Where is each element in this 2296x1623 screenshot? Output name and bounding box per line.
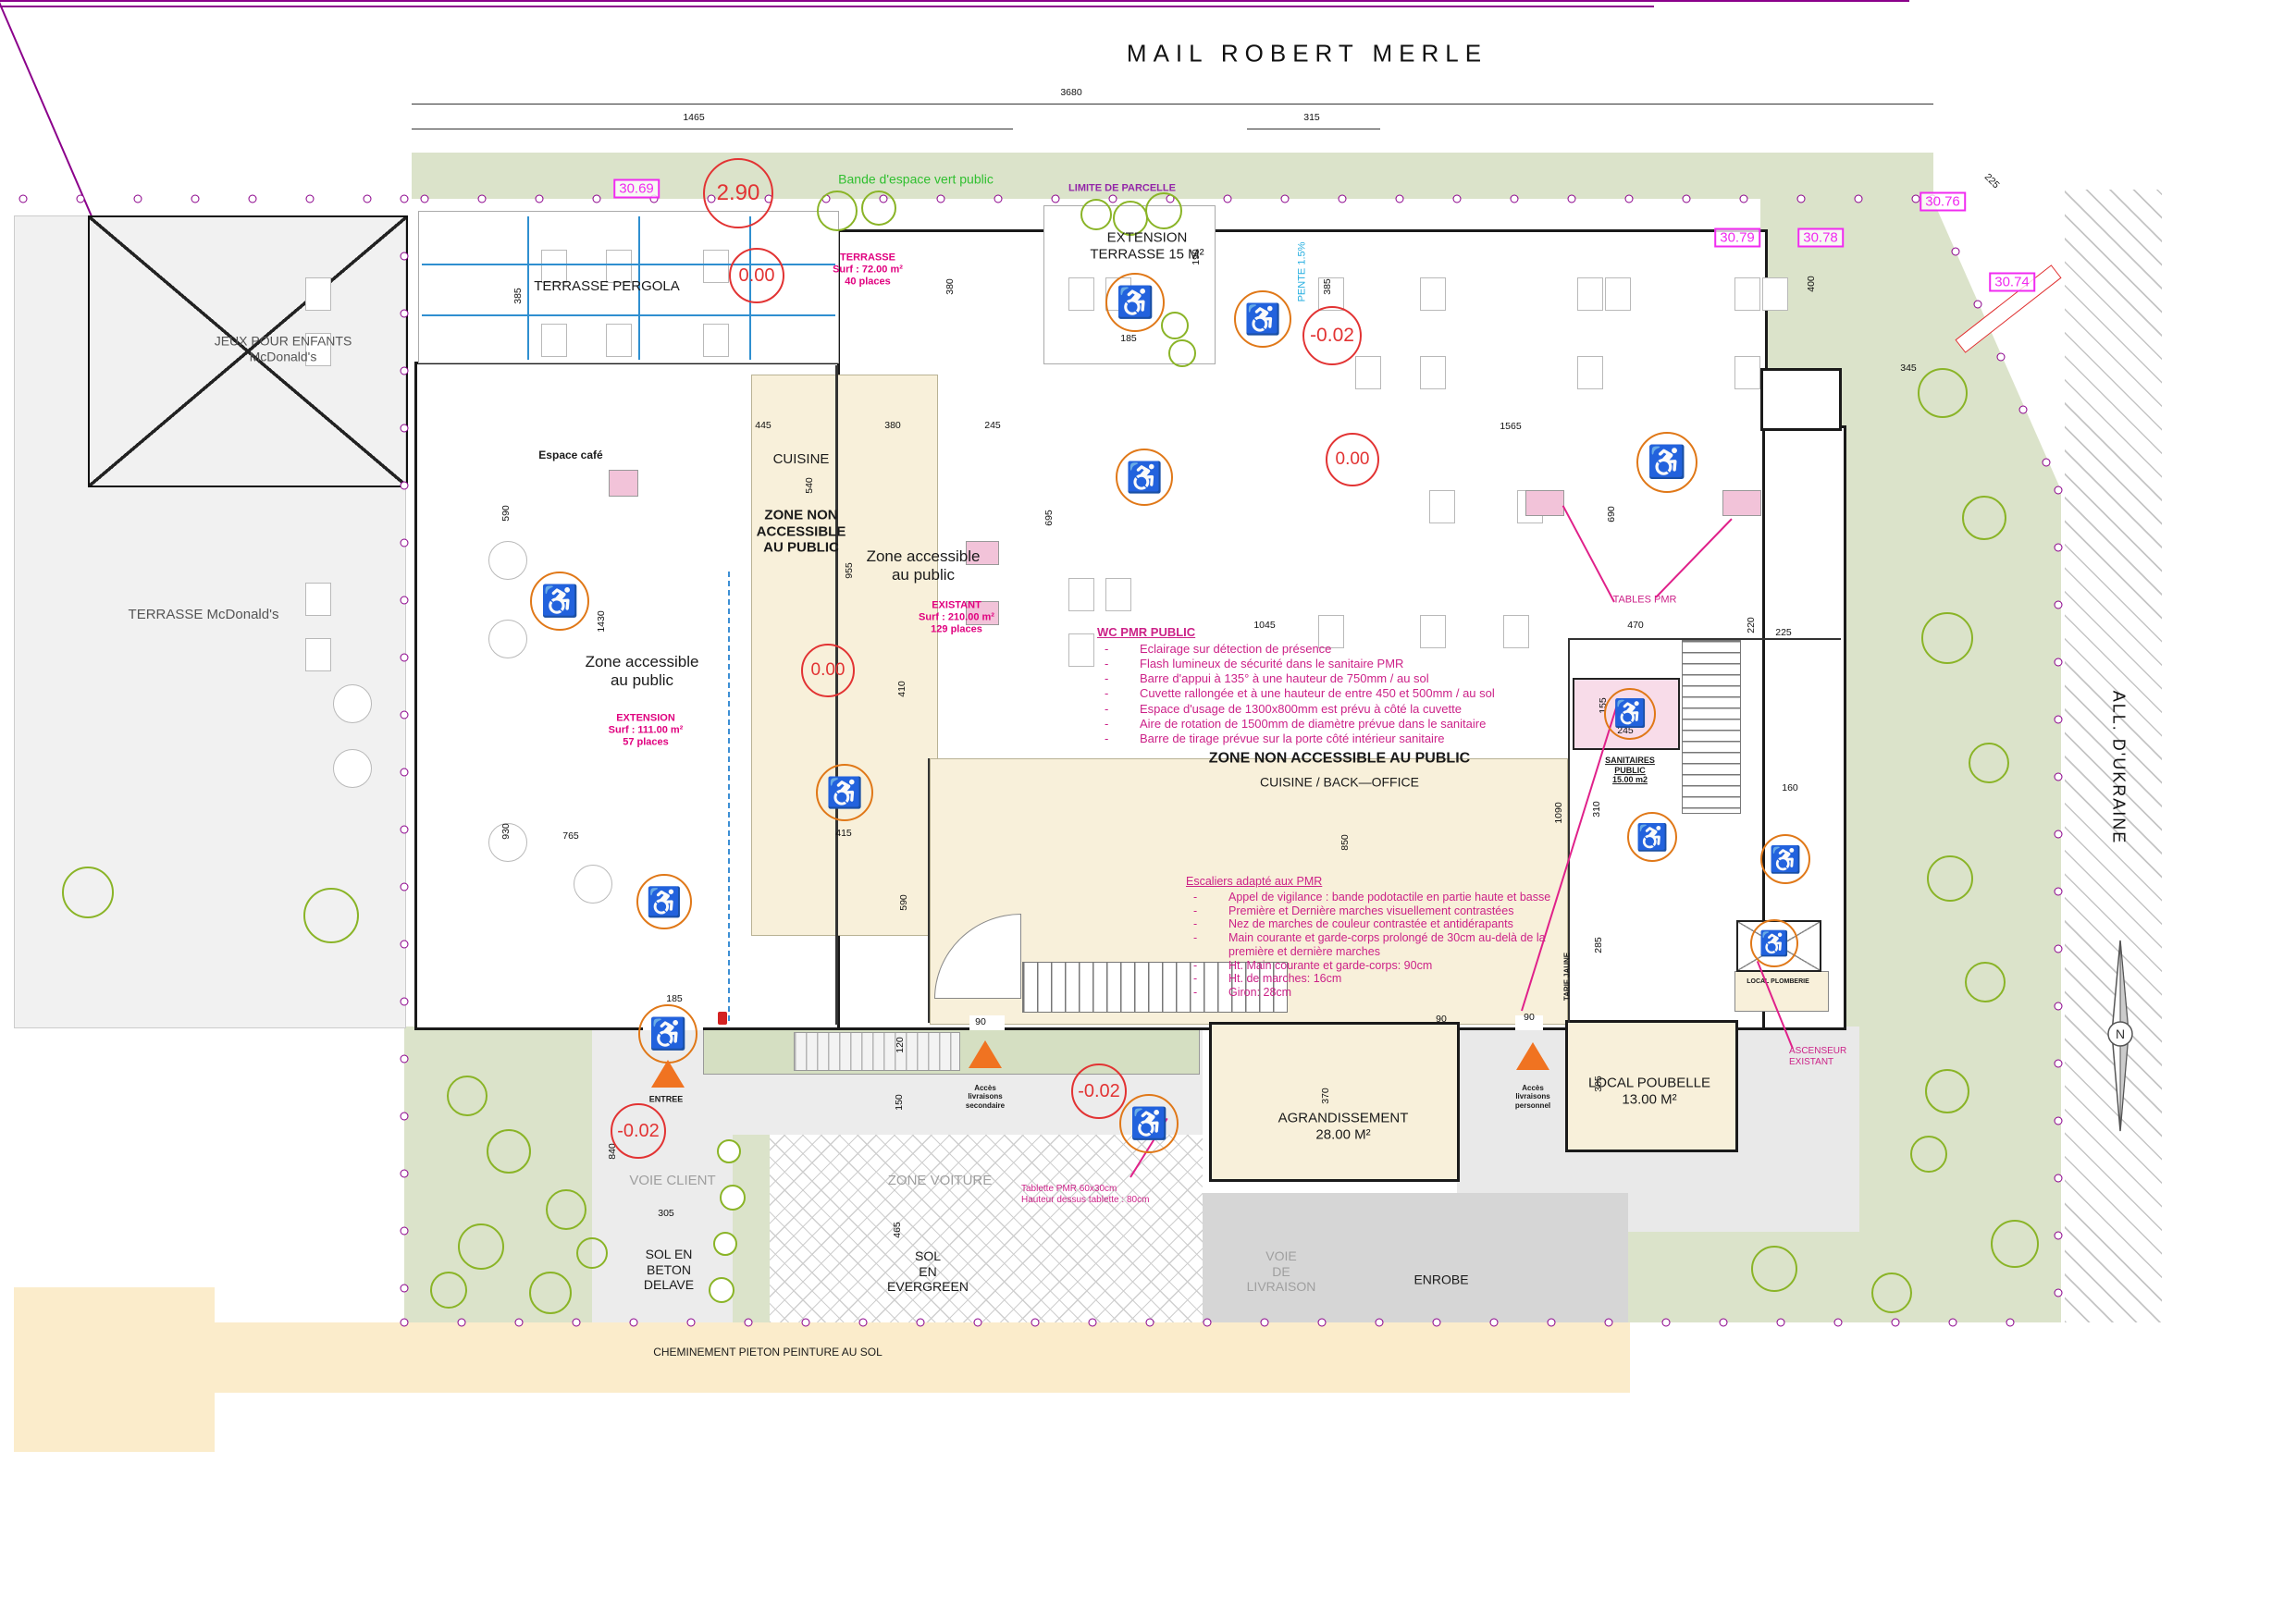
- parcel-boundary-marker: [1146, 1319, 1154, 1327]
- parcel-boundary-marker: [1318, 1319, 1327, 1327]
- dim-label: 225: [1775, 627, 1792, 638]
- parcel-boundary-marker: [401, 482, 409, 490]
- wall-v-backoffice: [928, 758, 930, 1023]
- round-table: [333, 749, 372, 788]
- wc-pmr-notes-list: Eclairage sur détection de présenceFlash…: [1097, 642, 1615, 746]
- tree-icon: [713, 1232, 737, 1256]
- local-plomberie-label: LOCAL PLOMBERIE: [1747, 978, 1809, 986]
- parcel-boundary-marker: [1834, 1319, 1843, 1327]
- note-item: Barre de tirage prévue sur la porte côté…: [1097, 732, 1615, 746]
- parcel-boundary-marker: [401, 654, 409, 662]
- cheminement-pieton-band: [215, 1322, 1630, 1393]
- dim-label: 415: [835, 828, 852, 839]
- parcel-boundary-marker: [2055, 1289, 2063, 1297]
- parcel-boundary-marker: [401, 998, 409, 1006]
- round-table: [333, 684, 372, 723]
- table: [1734, 356, 1760, 389]
- parcel-boundary-marker: [1376, 1319, 1384, 1327]
- voie-client-label: VOIE CLIENT: [629, 1173, 715, 1189]
- dim-label: 160: [1782, 782, 1798, 793]
- dim-line-315: [1247, 129, 1380, 129]
- tree-icon: [1168, 339, 1196, 367]
- dim-label: 1465: [683, 112, 704, 123]
- note-item: Main courante et garde-corps prolongé de…: [1186, 931, 1556, 959]
- dim-label: 1430: [596, 610, 607, 632]
- dim-label: 445: [755, 420, 772, 431]
- parcel-boundary-marker: [306, 195, 315, 203]
- parcel-boundary-marker: [994, 195, 1003, 203]
- parcel-boundary-marker: [1568, 195, 1576, 203]
- parcel-boundary-marker: [249, 195, 257, 203]
- dim-label: 955: [844, 562, 855, 579]
- table: [1734, 277, 1760, 311]
- parcel-boundary-marker: [1031, 1319, 1040, 1327]
- parcel-boundary-marker: [2055, 1174, 2063, 1183]
- parcel-boundary-marker: [573, 1319, 581, 1327]
- parcel-boundary-marker: [1052, 195, 1060, 203]
- table: [606, 324, 632, 357]
- wheelchair-pmr-icon: ♿: [636, 874, 692, 929]
- entree-triangle: [651, 1060, 685, 1088]
- table: [541, 324, 567, 357]
- parcel-boundary-marker: [401, 539, 409, 547]
- parcel-boundary-marker: [401, 1227, 409, 1236]
- dim-label: 3680: [1060, 87, 1081, 98]
- level-box: 30.78: [1797, 228, 1844, 248]
- parcel-boundary-marker: [1490, 1319, 1499, 1327]
- parcel-boundary-marker: [536, 195, 544, 203]
- parcel-boundary-marker: [2055, 486, 2063, 495]
- dim-label: 930: [500, 823, 512, 840]
- tree-icon: [1080, 199, 1112, 230]
- parcel-boundary-marker: [687, 1319, 696, 1327]
- dim-label: 305: [658, 1208, 674, 1219]
- note-item: Nez de marches de couleur contrastée et …: [1186, 917, 1556, 931]
- table: [1420, 356, 1446, 389]
- parcel-boundary-marker: [1855, 195, 1863, 203]
- dim-label: 590: [898, 894, 909, 911]
- parcel-boundary-marker: [2055, 945, 2063, 953]
- tree-icon: [817, 191, 858, 231]
- pente-label: PENTE 1.5%: [1297, 242, 1309, 302]
- dim-label: 465: [892, 1222, 903, 1238]
- parcel-boundary-marker: [478, 195, 487, 203]
- table: [305, 638, 331, 671]
- parcel-boundary-marker: [1453, 195, 1462, 203]
- cheminement-pieton-left: [14, 1287, 215, 1452]
- bande-espace-vert-label: Bande d'espace vert public: [838, 172, 994, 188]
- dim-label: 315: [1303, 112, 1320, 123]
- sol-evergreen-label: SOL EN EVERGREEN: [887, 1248, 969, 1295]
- espace-vert-bottomright: [1610, 1230, 1841, 1322]
- acces-personnel-label: Accès livraisons personnel: [1515, 1084, 1550, 1110]
- parcel-boundary-marker: [401, 1319, 409, 1327]
- dim-label: 120: [895, 1037, 906, 1053]
- parcel-boundary-marker: [421, 195, 429, 203]
- parcel-boundary-line: [0, 6, 1654, 7]
- note-item: Espace d'usage de 1300x800mm est prévu à…: [1097, 702, 1615, 717]
- existant-surf-label: EXISTANT Surf : 210.00 m² 129 places: [919, 600, 994, 636]
- parcel-boundary-marker: [401, 310, 409, 318]
- tree-icon: [1965, 962, 2006, 1002]
- dim-label: 185: [666, 993, 683, 1004]
- cheminement-label: CHEMINEMENT PIETON PEINTURE AU SOL: [653, 1346, 883, 1359]
- level-box: 30.69: [613, 179, 660, 199]
- parcel-boundary-marker: [1951, 247, 1959, 255]
- parcel-boundary-marker: [2055, 716, 2063, 724]
- pergola-grid-h2: [422, 314, 835, 316]
- dim-label: 380: [884, 420, 901, 431]
- parcel-boundary-marker: [1720, 1319, 1728, 1327]
- parcel-boundary-marker: [974, 1319, 982, 1327]
- parcel-boundary-marker: [401, 1285, 409, 1293]
- parcel-boundary-marker: [401, 367, 409, 375]
- local-plomberie-room: [1734, 971, 1829, 1012]
- level-box: 30.79: [1714, 228, 1760, 248]
- wheelchair-pmr-icon: ♿: [1105, 273, 1165, 332]
- parcel-boundary-marker: [401, 195, 409, 203]
- jeux-enfants-label: JEUX POUR ENFANTS McDonald's: [215, 333, 352, 363]
- parcel-boundary-marker: [1683, 195, 1691, 203]
- parcel-boundary-marker: [191, 195, 200, 203]
- stairs-pmr-notes-header: Escaliers adapté aux PMR: [1186, 875, 1556, 889]
- dim-label: 220: [1746, 617, 1757, 633]
- note-item: Appel de vigilance : bande podotactile e…: [1186, 891, 1556, 904]
- cuisine-label: CUISINE: [773, 451, 830, 468]
- parcel-boundary-marker: [1089, 1319, 1097, 1327]
- tree-icon: [447, 1076, 488, 1116]
- dim-line-1465: [412, 129, 1013, 129]
- tree-icon: [1918, 368, 1968, 418]
- table: [1068, 578, 1094, 611]
- parcel-boundary-marker: [77, 195, 85, 203]
- tree-icon: [1969, 743, 2009, 783]
- tree-icon: [576, 1237, 608, 1269]
- extension-terrasse-label: EXTENSION TERRASSE 15 M²: [1090, 229, 1204, 262]
- parcel-boundary-marker: [401, 1170, 409, 1178]
- parcel-boundary-marker: [1281, 195, 1290, 203]
- parcel-boundary-marker: [2055, 773, 2063, 781]
- wheelchair-pmr-icon: ♿: [638, 1004, 697, 1064]
- parcel-boundary-marker: [745, 1319, 753, 1327]
- tablette-pmr-label: Tablette PMR 60x30cm Hauteur dessus tabl…: [1021, 1184, 1149, 1206]
- tables-pmr-label: TABLES PMR: [1613, 595, 1677, 607]
- parcel-boundary-marker: [1204, 1319, 1212, 1327]
- wheelchair-pmr-icon: ♿: [1234, 290, 1291, 348]
- limite-parcelle-label: LIMITE DE PARCELLE: [1068, 183, 1176, 195]
- wheelchair-pmr-icon: ♿: [816, 764, 873, 821]
- zone-non-accessible-2-label: ZONE NON ACCESSIBLE AU PUBLIC: [1209, 751, 1470, 768]
- local-poubelle-label: LOCAL POUBELLE 13.00 M²: [1588, 1075, 1710, 1107]
- round-table: [574, 865, 612, 904]
- wc-pmr-notes-header: WC PMR PUBLIC: [1097, 625, 1615, 640]
- table: [1762, 277, 1788, 311]
- tree-icon: [1751, 1246, 1797, 1292]
- parcel-boundary-marker: [917, 1319, 925, 1327]
- pmr-table-highlight: [1722, 490, 1761, 516]
- planting-strip: [733, 1135, 770, 1322]
- extension-surf-label: EXTENSION Surf : 111.00 m² 57 places: [609, 713, 684, 749]
- terrasse-surf-label: TERRASSE Surf : 72.00 m² 40 places: [833, 252, 903, 289]
- level-circle: 0.00: [1326, 433, 1379, 486]
- acces-secondaire-triangle: [969, 1040, 1002, 1068]
- parcel-boundary-marker: [593, 195, 601, 203]
- parcel-boundary-marker: [1396, 195, 1404, 203]
- table: [1577, 277, 1603, 311]
- wheelchair-pmr-icon: ♿: [1116, 449, 1173, 506]
- parcel-boundary-marker: [1912, 195, 1920, 203]
- table: [1105, 578, 1131, 611]
- tree-icon: [458, 1223, 504, 1270]
- stairs-right: [1682, 640, 1741, 814]
- acces-personnel-triangle: [1516, 1042, 1549, 1070]
- cuisine-backoffice-label: CUISINE / BACK—OFFICE: [1260, 775, 1419, 791]
- table: [703, 324, 729, 357]
- parcel-boundary-marker: [364, 195, 372, 203]
- wheelchair-pmr-icon: ♿: [1636, 432, 1697, 493]
- ascenseur-existant-label: ASCENSEUR EXISTANT: [1789, 1046, 1846, 1068]
- dim-label: 385: [512, 288, 524, 304]
- parcel-boundary-marker: [401, 826, 409, 834]
- tree-icon: [861, 191, 896, 226]
- level-box: 30.74: [1989, 273, 2035, 292]
- tree-icon: [487, 1129, 531, 1174]
- sanitaires-public-label: SANITAIRES PUBLIC 15.00 m2: [1605, 756, 1655, 785]
- tree-icon: [529, 1272, 572, 1314]
- parcel-boundary-marker: [401, 596, 409, 605]
- wc-pmr-notes: WC PMR PUBLIC Eclairage sur détection de…: [1097, 625, 1615, 746]
- level-circle: 0.00: [801, 644, 855, 697]
- tree-icon: [1921, 612, 1973, 664]
- parcel-boundary-marker: [1625, 195, 1634, 203]
- agrandissement-label: AGRANDISSEMENT 28.00 M²: [1278, 1110, 1409, 1142]
- parcel-boundary-marker: [2055, 1002, 2063, 1011]
- parcel-boundary-marker: [1511, 195, 1519, 203]
- parcel-boundary-marker: [401, 424, 409, 433]
- enrobe-label: ENROBE: [1413, 1273, 1468, 1288]
- parcel-boundary-marker: [1949, 1319, 1957, 1327]
- parcel-boundary-marker: [2055, 658, 2063, 667]
- entrance-deck-grille: [794, 1032, 960, 1071]
- parcel-boundary-marker: [1261, 1319, 1269, 1327]
- parcel-boundary-marker: [1339, 195, 1347, 203]
- dim-label: 90: [1436, 1014, 1447, 1025]
- fire-extinguisher-icon: [718, 1012, 727, 1025]
- parcel-boundary-marker: [401, 1113, 409, 1121]
- tree-icon: [546, 1189, 586, 1230]
- parcel-boundary-marker: [2042, 458, 2050, 466]
- dim-label: 285: [1593, 937, 1604, 953]
- parcel-boundary-marker: [134, 195, 142, 203]
- dim-label: 310: [1591, 801, 1602, 818]
- dim-label: 345: [1900, 363, 1917, 374]
- tree-icon: [720, 1185, 746, 1211]
- table: [1420, 277, 1446, 311]
- agrandissement-room: [1209, 1022, 1460, 1182]
- parcel-boundary-marker: [1433, 1319, 1441, 1327]
- parcel-boundary-marker: [1109, 195, 1117, 203]
- entree-label: ENTREE: [649, 1095, 684, 1105]
- table: [1355, 356, 1381, 389]
- parcel-boundary-marker: [1797, 195, 1806, 203]
- svg-text:N: N: [2116, 1027, 2125, 1041]
- note-item: Première et Dernière marches visuellemen…: [1186, 904, 1556, 918]
- table: [1577, 356, 1603, 389]
- parcel-boundary-marker: [1224, 195, 1232, 203]
- level-circle: 0.00: [729, 248, 784, 303]
- stairs-pmr-notes-list: Appel de vigilance : bande podotactile e…: [1186, 891, 1556, 1000]
- zone-voiture-label: ZONE VOITURE: [888, 1173, 993, 1189]
- dim-label: 150: [894, 1094, 905, 1111]
- parcel-boundary-marker: [2055, 830, 2063, 839]
- parcel-boundary-line: [0, 0, 1909, 2]
- parcel-boundary-marker: [2055, 1060, 2063, 1068]
- tree-icon: [709, 1277, 734, 1303]
- parcel-boundary-marker: [937, 195, 945, 203]
- parcel-boundary-marker: [2006, 1319, 2015, 1327]
- tree-icon: [1925, 1069, 1969, 1113]
- terrasse-pergola-label: TERRASSE PERGOLA: [534, 278, 680, 295]
- wheelchair-pmr-icon: ♿: [1627, 812, 1677, 862]
- dim-label: 185: [1120, 333, 1137, 344]
- parcel-boundary-marker: [1548, 1319, 1556, 1327]
- note-item: Cuvette rallongée et à une hauteur de en…: [1097, 686, 1615, 701]
- parcel-boundary-marker: [2019, 405, 2028, 413]
- dim-label: 245: [984, 420, 1001, 431]
- table: [1068, 277, 1094, 311]
- dim-label: 90: [975, 1016, 986, 1027]
- wheelchair-pmr-icon: ♿: [530, 572, 589, 631]
- table: [1429, 490, 1455, 523]
- parcel-boundary-marker: [1974, 300, 1982, 308]
- dim-label: 850: [1339, 834, 1351, 851]
- page-title: MAIL ROBERT MERLE: [1127, 40, 1487, 68]
- wheelchair-pmr-icon: ♿: [1119, 1094, 1179, 1153]
- parcel-boundary-marker: [802, 1319, 810, 1327]
- note-item: Ht. Main courante et garde-corps: 90cm: [1186, 959, 1556, 973]
- parcel-boundary-marker: [1777, 1319, 1785, 1327]
- note-item: Barre d'appui à 135° à une hauteur de 75…: [1097, 671, 1615, 686]
- level-circle: -0.02: [1071, 1064, 1127, 1119]
- tree-icon: [1927, 855, 1973, 902]
- parcel-boundary-marker: [1892, 1319, 1900, 1327]
- dim-label: 90: [1524, 1012, 1535, 1023]
- parcel-boundary-marker: [401, 252, 409, 261]
- zone-accessible-label-1: Zone accessible au public: [867, 547, 981, 584]
- level-circle: -0.02: [611, 1103, 666, 1159]
- parcel-boundary-marker: [401, 1055, 409, 1064]
- tree-icon: [1871, 1273, 1912, 1313]
- corner-room: [1760, 368, 1842, 431]
- note-item: Giron: 28cm: [1186, 986, 1556, 1000]
- dim-label: 765: [562, 830, 579, 842]
- parcel-boundary-marker: [1662, 1319, 1671, 1327]
- parcel-boundary-marker: [2055, 544, 2063, 552]
- voie-livraison-label: VOIE DE LIVRAISON: [1247, 1248, 1316, 1295]
- street-name: ALL. D'UKRAINE: [2109, 691, 2129, 844]
- espace-cafe-label: Espace café: [538, 449, 602, 461]
- parcel-boundary-marker: [1740, 195, 1748, 203]
- note-item: Aire de rotation de 1500mm de diamètre p…: [1097, 717, 1615, 732]
- table: [305, 277, 331, 311]
- tree-icon: [62, 867, 114, 918]
- dim-label: 695: [1043, 510, 1055, 526]
- dim-label: 590: [500, 505, 512, 522]
- parcel-boundary-marker: [630, 1319, 638, 1327]
- dim-label: 225: [1981, 171, 2001, 191]
- dim-label: 370: [1320, 1088, 1331, 1104]
- parcel-boundary-marker: [2055, 1117, 2063, 1125]
- level-circle: 2.90: [703, 158, 773, 228]
- tree-icon: [1910, 1136, 1947, 1173]
- parcel-boundary-marker: [1605, 1319, 1613, 1327]
- round-table: [488, 620, 527, 658]
- table: [1605, 277, 1631, 311]
- tree-icon: [717, 1139, 741, 1163]
- pmr-table-highlight: [609, 470, 638, 497]
- pmr-table-highlight: [1525, 490, 1564, 516]
- note-item: Flash lumineux de sécurité dans le sanit…: [1097, 657, 1615, 671]
- tree-icon: [1145, 192, 1182, 229]
- acces-secondaire-label: Accès livraisons secondaire: [966, 1084, 1005, 1110]
- stairs-pmr-notes: Escaliers adapté aux PMR Appel de vigila…: [1186, 875, 1556, 1000]
- tree-icon: [303, 888, 359, 943]
- dim-label: 540: [804, 477, 815, 494]
- parcel-boundary-marker: [458, 1319, 466, 1327]
- dim-label: 385: [1322, 278, 1333, 295]
- parcel-boundary-marker: [401, 883, 409, 891]
- level-circle: -0.02: [1302, 306, 1362, 365]
- wheelchair-pmr-icon: ♿: [1760, 834, 1810, 884]
- table: [1068, 633, 1094, 667]
- dim-label: 690: [1606, 506, 1617, 523]
- parcel-boundary-marker: [2055, 888, 2063, 896]
- parcel-boundary-marker: [1996, 352, 2005, 361]
- table: [703, 250, 729, 283]
- zone-non-accessible-label: ZONE NON ACCESSIBLE AU PUBLIC: [757, 507, 846, 556]
- tree-icon: [1962, 496, 2006, 540]
- tree-icon: [430, 1272, 467, 1309]
- parcel-boundary-marker: [401, 711, 409, 719]
- parcel-boundary-marker: [2055, 601, 2063, 609]
- dim-label: 470: [1627, 620, 1644, 631]
- dim-label: 400: [1806, 276, 1817, 292]
- level-box: 30.76: [1920, 192, 1966, 212]
- site-plan: MAIL ROBERT MERLE ALL. D'UKRAINE N WC PM…: [0, 0, 2296, 1623]
- extension-zone-dashed-line: [728, 572, 730, 1021]
- annotations-layer: TERRASSE PERGOLAEXTENSION TERRASSE 15 M²…: [0, 0, 2296, 9]
- wheelchair-pmr-icon: ♿: [1750, 919, 1798, 967]
- note-item: Eclairage sur détection de présence: [1097, 642, 1615, 657]
- tree-icon: [1991, 1220, 2039, 1268]
- zone-accessible-label-2: Zone accessible au public: [586, 653, 699, 690]
- parcel-boundary-marker: [2055, 1232, 2063, 1240]
- dim-line-3680: [412, 104, 1933, 105]
- parcel-boundary-marker: [19, 195, 28, 203]
- dim-label: 1090: [1553, 802, 1564, 823]
- tree-icon: [1161, 312, 1189, 339]
- pergola-grid-v1: [527, 216, 529, 360]
- espace-vert-right-column: [1841, 199, 2061, 1322]
- table: [305, 583, 331, 616]
- dim-label: 410: [896, 681, 907, 697]
- note-item: Ht. de marches: 16cm: [1186, 972, 1556, 986]
- parcel-boundary-marker: [401, 941, 409, 949]
- parcel-boundary-marker: [515, 1319, 524, 1327]
- dim-label: 380: [944, 278, 956, 295]
- sol-beton-label: SOL EN BETON DELAVE: [644, 1247, 694, 1293]
- round-table: [488, 541, 527, 580]
